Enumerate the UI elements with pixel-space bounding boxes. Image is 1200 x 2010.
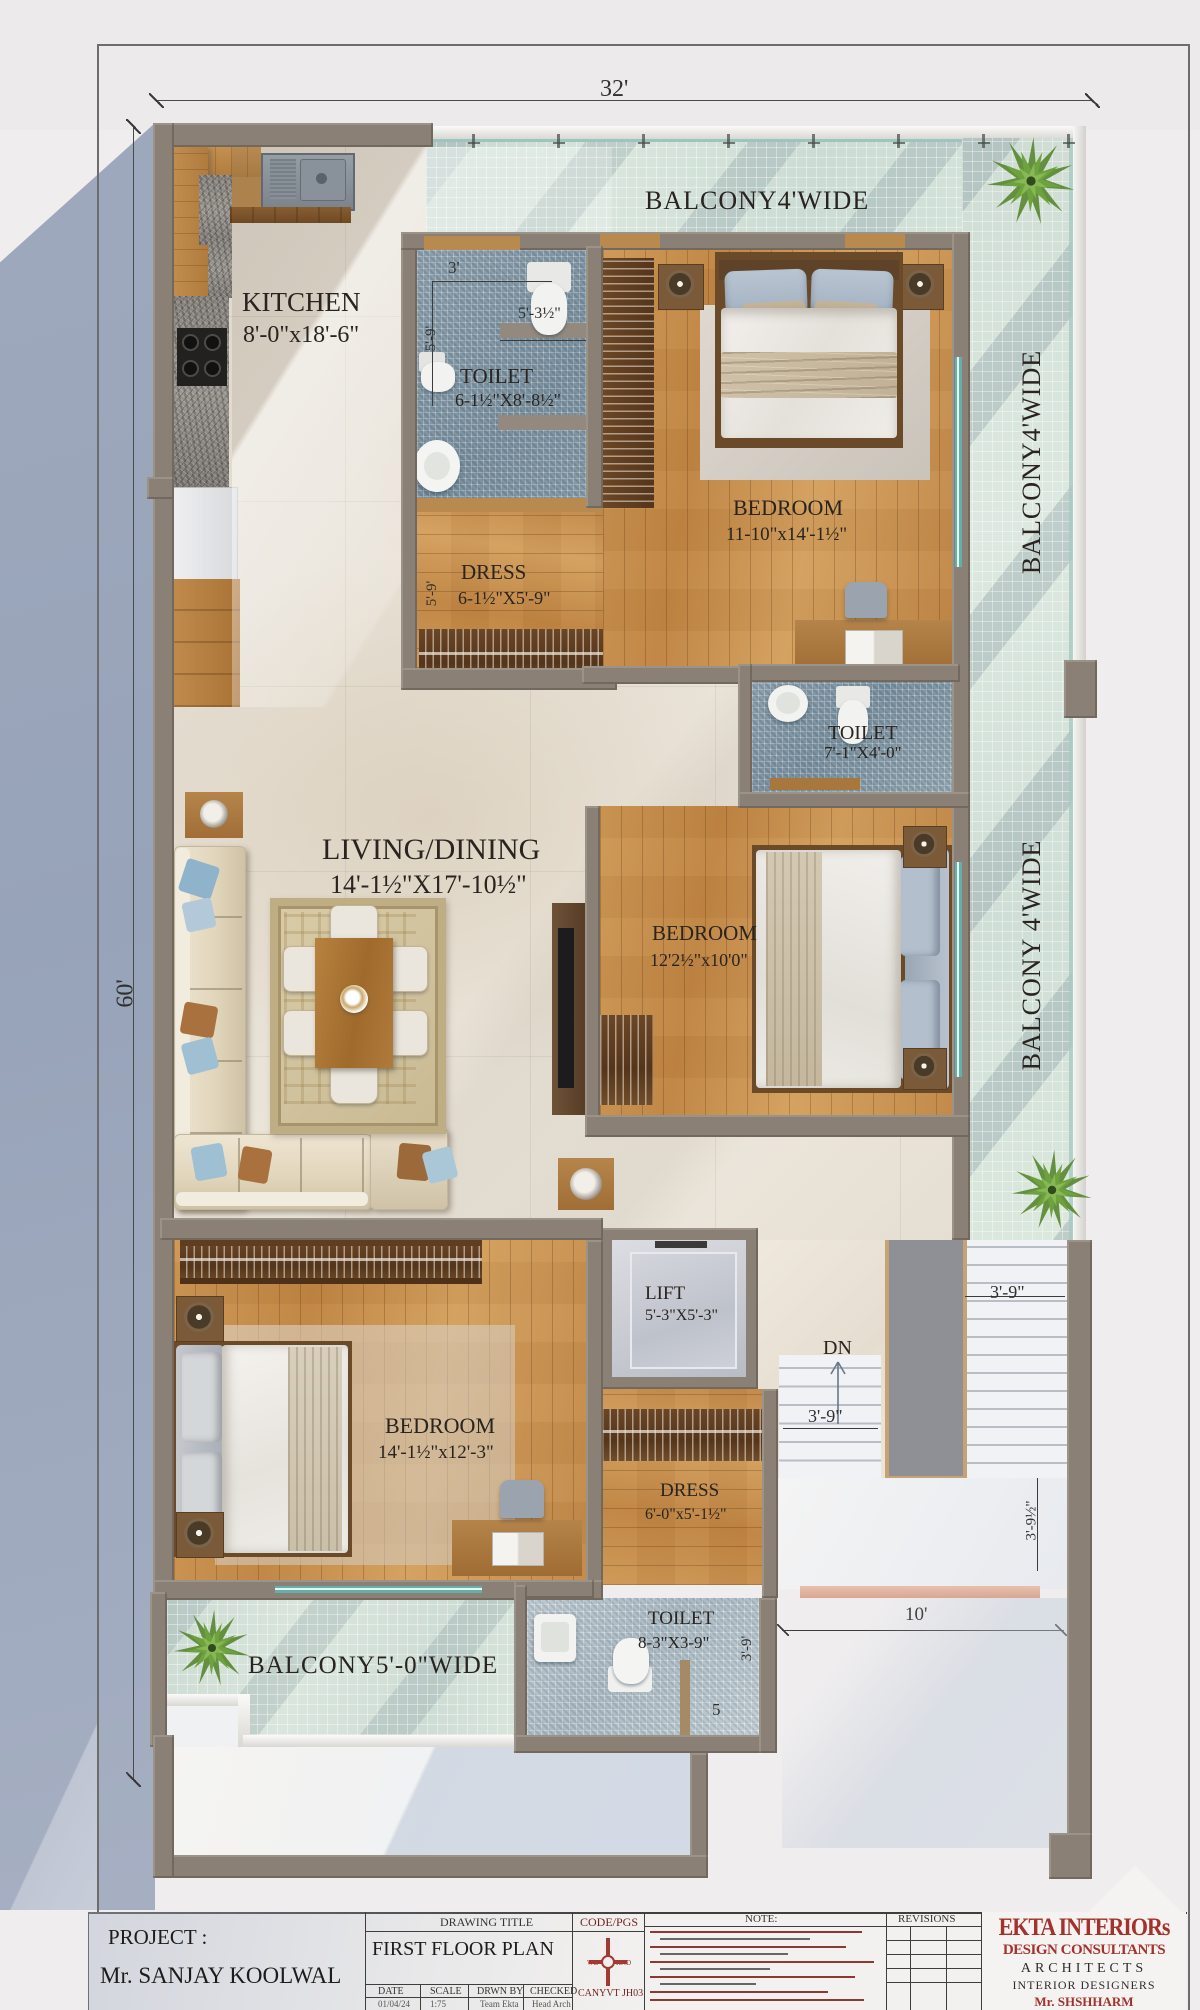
svg-text:WD: WD (587, 1959, 599, 1967)
svg-text:HND: HND (616, 1959, 631, 1967)
